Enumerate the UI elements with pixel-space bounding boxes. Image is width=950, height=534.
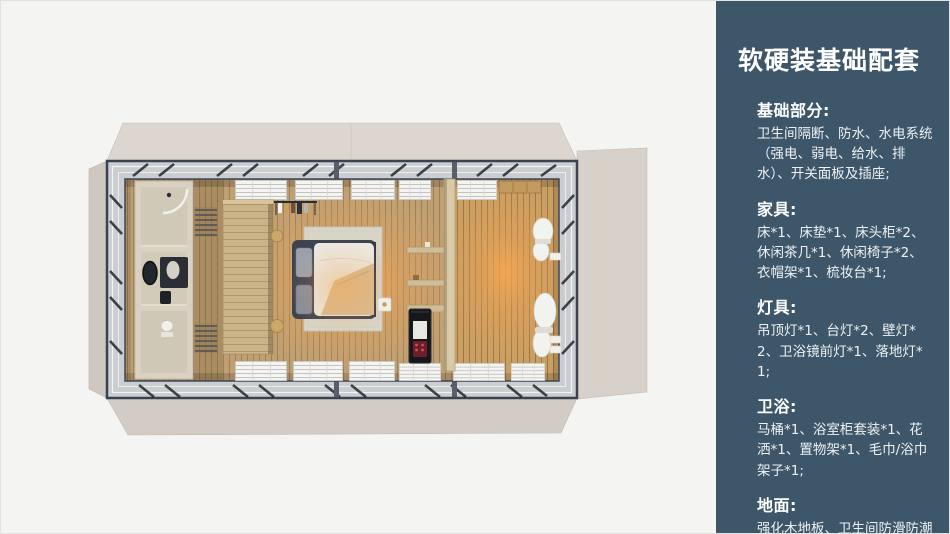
section-bathroom-heading: 卫浴: (757, 393, 935, 417)
basket-bottom (271, 320, 284, 333)
louver-panels-bottom (236, 362, 545, 381)
section-flooring-body: 强化木地板、卫生间防滑防潮石塑板; (757, 519, 935, 534)
floorplan-render-area (1, 1, 718, 534)
floorplan-render (1, 1, 718, 534)
section-furniture-body: 床*1、床垫*1、床头柜*2、休闲茶几*1、休闲椅子*2、衣帽架*1、梳妆台*1… (757, 223, 935, 284)
slide: 软硬装基础配套 基础部分: 卫生间隔断、防水、水电系统（强电、弱电、给水、排水）… (0, 0, 950, 534)
toilet-tank (161, 332, 173, 337)
minibar (409, 309, 431, 363)
section-basics-body: 卫生间隔断、防水、水电系统（强电、弱电、给水、排水）、开关面板及插座; (757, 124, 935, 185)
section-furniture: 家具: 床*1、床垫*1、床头柜*2、休闲茶几*1、休闲椅子*2、衣帽架*1、梳… (757, 196, 935, 284)
section-lighting-heading: 灯具: (757, 294, 935, 318)
section-flooring-heading: 地面: (757, 492, 935, 516)
bed-area (288, 227, 398, 336)
section-lighting: 灯具: 吊顶灯*1、台灯*2、壁灯*2、卫浴镜前灯*1、落地灯*1; (757, 294, 935, 382)
louver-panels-top (236, 181, 497, 200)
wall-shelf-2 (407, 280, 444, 286)
section-basics-heading: 基础部分: (757, 97, 935, 121)
shower-head (167, 193, 171, 197)
vanity-mirror (143, 262, 157, 285)
info-panel: 软硬装基础配套 基础部分: 卫生间隔断、防水、水电系统（强电、弱电、给水、排水）… (716, 1, 949, 534)
section-bathroom: 卫浴: 马桶*1、浴室柜套装*1、花洒*1、置物架*1、毛巾/浴巾架子*1; (757, 393, 935, 481)
toilet (161, 321, 173, 332)
section-flooring: 地面: 强化木地板、卫生间防滑防潮石塑板; (757, 492, 935, 534)
vanity-sink (167, 261, 180, 279)
wall-shelf-1 (407, 247, 444, 253)
wood-bench (499, 181, 541, 193)
bathroom (135, 181, 193, 379)
vanity-stool (160, 291, 171, 304)
section-lighting-body: 吊顶灯*1、台灯*2、壁灯*2、卫浴镜前灯*1、落地灯*1; (757, 321, 935, 382)
section-furniture-heading: 家具: (757, 196, 935, 220)
table-lamp (382, 302, 386, 306)
panel-sections: 基础部分: 卫生间隔断、防水、水电系统（强电、弱电、给水、排水）、开关面板及插座… (757, 97, 935, 534)
section-bathroom-body: 马桶*1、浴室柜套装*1、花洒*1、置物架*1、毛巾/浴巾架子*1; (757, 420, 935, 481)
basket-top (271, 230, 283, 242)
section-basics: 基础部分: 卫生间隔断、防水、水电系统（强电、弱电、给水、排水）、开关面板及插座… (757, 97, 935, 185)
panel-title: 软硬装基础配套 (738, 47, 949, 76)
headboard-panel (223, 200, 273, 354)
towel-stack (550, 253, 561, 260)
